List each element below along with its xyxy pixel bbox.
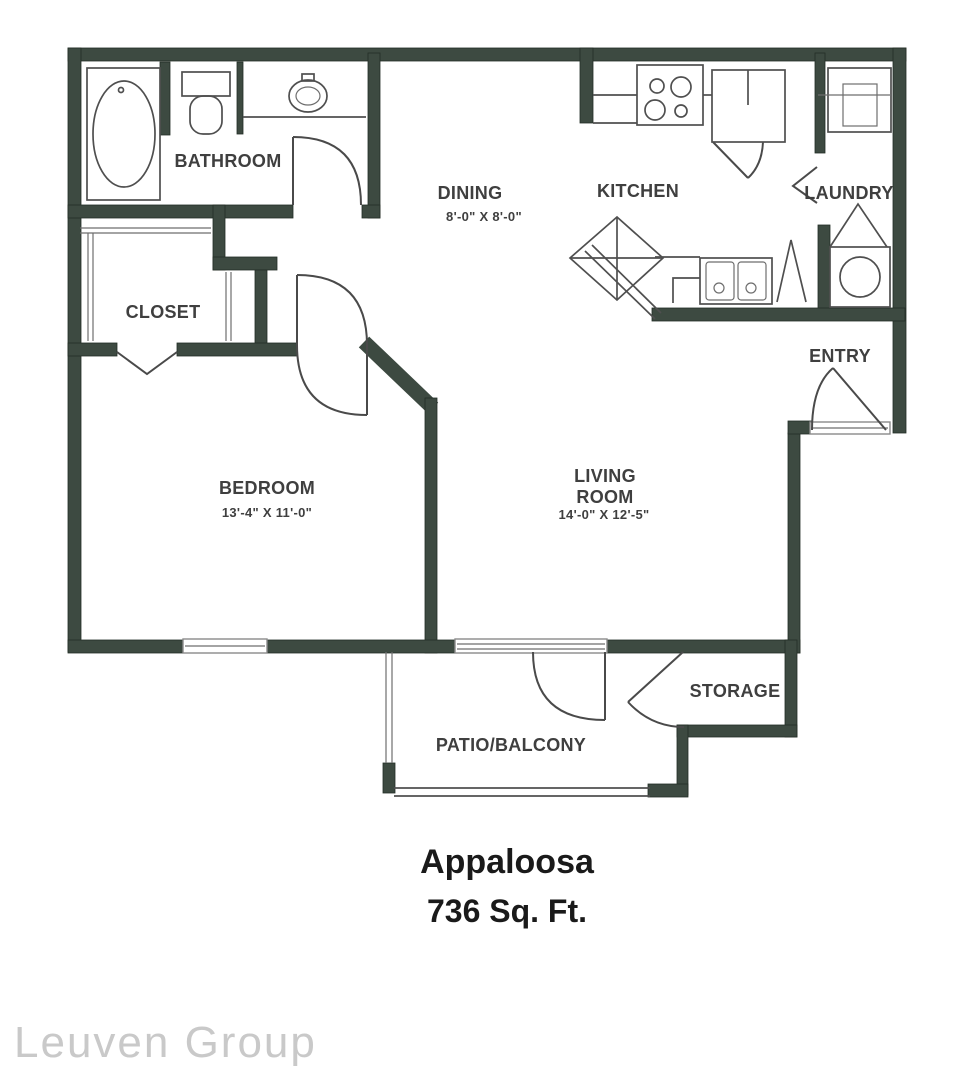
room-labels: BATHROOM CLOSET BEDROOM 13'-4" X 11'-0" … bbox=[126, 151, 894, 755]
closet-shelves bbox=[80, 228, 231, 341]
dryer bbox=[830, 204, 890, 307]
bedroom-dimensions: 13'-4" X 11'-0" bbox=[222, 505, 312, 520]
plan-title: Appaloosa 736 Sq. Ft. bbox=[420, 843, 595, 929]
floor-plan-drawing: BATHROOM CLOSET BEDROOM 13'-4" X 11'-0" … bbox=[0, 0, 964, 1080]
unit-area: 736 Sq. Ft. bbox=[427, 893, 587, 929]
patio-door-threshold bbox=[455, 639, 607, 653]
bathtub bbox=[87, 68, 160, 200]
closet-bifold-door bbox=[117, 352, 177, 374]
stove bbox=[637, 65, 703, 125]
storage-door bbox=[628, 652, 684, 727]
toilet bbox=[182, 72, 230, 134]
kitchen-label: KITCHEN bbox=[597, 181, 679, 201]
living-room-label-line2: ROOM bbox=[576, 487, 633, 507]
entry-label: ENTRY bbox=[809, 346, 871, 366]
storage-label: STORAGE bbox=[690, 681, 781, 701]
living-room-label-line1: LIVING bbox=[574, 466, 636, 486]
patio-door bbox=[533, 652, 605, 720]
bedroom-door bbox=[297, 345, 367, 415]
washer bbox=[818, 68, 891, 132]
vestibule-door bbox=[297, 275, 367, 345]
living-room-dimensions: 14'-0" X 12'-5" bbox=[559, 507, 650, 522]
closet-label: CLOSET bbox=[126, 302, 201, 322]
patio-railing bbox=[386, 652, 650, 796]
floor-plan-page: BATHROOM CLOSET BEDROOM 13'-4" X 11'-0" … bbox=[0, 0, 964, 1080]
unit-name: Appaloosa bbox=[420, 843, 595, 881]
watermark-text: Leuven Group bbox=[14, 1018, 317, 1067]
bedroom-label: BEDROOM bbox=[219, 478, 315, 498]
kitchen-sink bbox=[700, 258, 772, 304]
watermark: Leuven Group Leuven Group bbox=[14, 1018, 319, 1069]
fridge-nook-door bbox=[713, 142, 763, 178]
kitchen-counter bbox=[585, 95, 712, 319]
pantry-door-swing bbox=[777, 240, 806, 302]
bedroom-window bbox=[183, 639, 267, 653]
entry-door bbox=[812, 368, 886, 430]
bathroom-label: BATHROOM bbox=[174, 151, 281, 171]
patio-label: PATIO/BALCONY bbox=[436, 735, 586, 755]
refrigerator bbox=[712, 70, 785, 142]
dining-label: DINING bbox=[438, 183, 503, 203]
laundry-label: LAUNDRY bbox=[804, 183, 893, 203]
dining-dimensions: 8'-0" X 8'-0" bbox=[446, 209, 522, 224]
entry-threshold bbox=[810, 422, 890, 434]
bathroom-sink bbox=[243, 74, 366, 117]
kitchen-island bbox=[570, 217, 663, 300]
bathroom-door bbox=[293, 137, 361, 205]
